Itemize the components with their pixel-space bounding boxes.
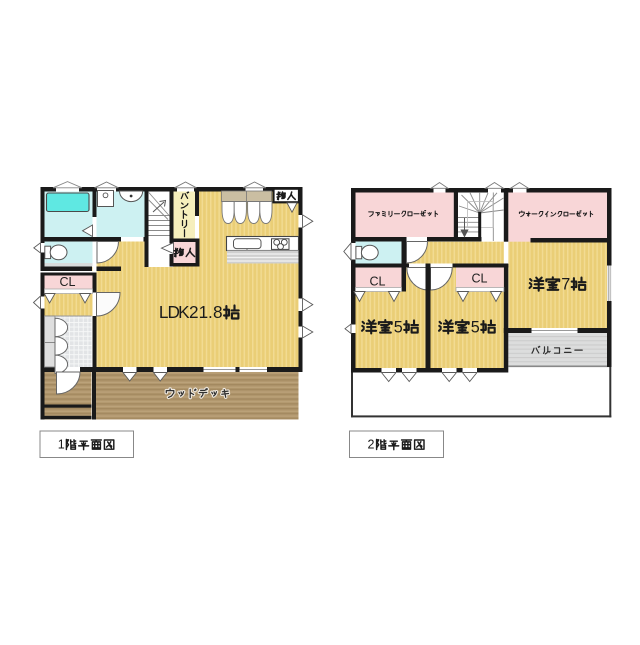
svg-text:CL: CL	[60, 275, 76, 289]
svg-text:5: 5	[471, 318, 480, 336]
svg-text:1: 1	[58, 438, 65, 452]
svg-text:2: 2	[368, 438, 375, 452]
svg-text:1: 1	[199, 302, 209, 322]
svg-text:5: 5	[394, 318, 403, 336]
svg-text:CL: CL	[370, 275, 386, 289]
svg-text:CL: CL	[472, 272, 488, 286]
svg-text:2: 2	[189, 302, 199, 322]
svg-text:8: 8	[213, 302, 223, 322]
svg-text:7: 7	[561, 276, 570, 294]
